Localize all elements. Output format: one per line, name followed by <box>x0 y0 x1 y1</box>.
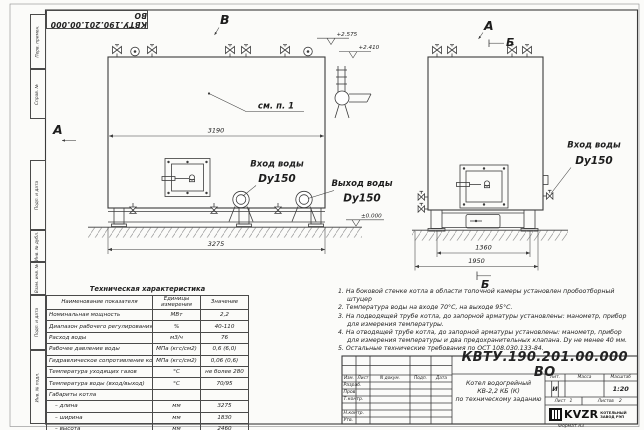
inlet-label-side: Вход воды Dy150 <box>551 141 621 194</box>
company-subtitle: КОТЕЛЬНЫЙ ЗАВОД РЭП <box>600 411 626 419</box>
svg-text:1360: 1360 <box>475 244 492 252</box>
drawing-sheet: 3190 3275 см. п. 1 Вход воды Dy150 Выход… <box>0 0 644 430</box>
svg-text:А: А <box>483 18 494 33</box>
lifting-lug-icon <box>131 47 140 56</box>
valve-icon <box>523 45 532 57</box>
valve-icon <box>148 45 157 57</box>
format-label: Формат А3 <box>558 424 584 429</box>
svg-text:Вход воды: Вход воды <box>567 141 621 151</box>
sheets-cell: Листов 2 <box>582 397 638 405</box>
elevation-mark-mid: +2.410 <box>339 45 380 58</box>
ground-hatch-side <box>412 230 568 240</box>
spec-row: Расход водым3/ч76 <box>47 332 249 343</box>
spec-row: – ширинамм1830 <box>47 412 249 423</box>
spec-table-title: Техническая характеристика <box>46 285 249 293</box>
lit-header: Лит. <box>545 374 565 381</box>
spec-table: Техническая характеристика Наименование … <box>46 285 249 430</box>
margin-field-inv-podl: Инв. № подл. <box>30 350 46 424</box>
sheet-cell: Лист 1 <box>545 397 582 405</box>
side-view: А Б <box>412 18 621 291</box>
inlet-label-front: Вход воды Dy150 <box>243 160 304 197</box>
row-prov: Пров. <box>344 390 371 395</box>
ash-box <box>466 215 500 229</box>
spec-header-cell: Единицы измерения <box>153 296 201 310</box>
boiler-body-side <box>428 57 543 210</box>
elevation-mark-top: +2.575 <box>317 32 358 45</box>
section-mark-b-top: Б <box>489 36 514 49</box>
row-utv: Утв. <box>344 418 371 423</box>
support-frame-front <box>108 208 325 227</box>
roof-fittings-front <box>113 45 313 57</box>
rotated-doc-stamp: КВТУ.190.201.00.000 ВО <box>46 10 148 29</box>
svg-text:±0.000: ±0.000 <box>361 213 382 219</box>
margin-field-podp-data-2: Подп. и дата <box>30 295 46 350</box>
furnace-door-front <box>162 159 210 197</box>
valve-icon <box>113 45 122 57</box>
note-line: 3. На подводящей трубе котла, до запорно… <box>338 313 635 329</box>
dim-text: 3275 <box>208 240 225 248</box>
col-izm: Изм. <box>342 376 356 382</box>
company-logo: KVZR КОТЕЛЬНЫЙ ЗАВОД РЭП <box>545 405 642 424</box>
lifting-lug-icon <box>304 47 313 56</box>
row-tkontr: Т.контр. <box>344 397 371 402</box>
svg-text:Dy150: Dy150 <box>343 193 380 205</box>
dim-text: 3190 <box>208 127 225 135</box>
mass-header: Масса <box>565 374 604 381</box>
svg-text:Dy150: Dy150 <box>575 155 612 167</box>
dimension-3190: 3190 <box>109 127 324 137</box>
door-handle <box>457 183 470 187</box>
spec-row: Диапазон рабочего регулирования%40-110 <box>47 321 249 332</box>
spec-row: Температура воды (вход/выход)°С70/95 <box>47 378 249 389</box>
spec-header-row: Наименование показателя Единицы измерени… <box>47 296 249 310</box>
margin-field-podp-data-1: Подп. и дата <box>30 160 46 230</box>
outlet-pipe-assembly <box>335 66 371 118</box>
ground-hatch <box>88 227 362 237</box>
row-nkontr: Н.контр. <box>344 411 371 416</box>
view-label-a-side: А <box>479 18 494 39</box>
svg-text:Dy150: Dy150 <box>258 173 295 185</box>
valve-icon <box>418 191 428 200</box>
valve-icon <box>448 45 457 57</box>
technical-notes: 1. На боковой стенке котла в области топ… <box>338 288 635 354</box>
view-label-v: В <box>215 12 230 35</box>
spec-header-cell: Наименование показателя <box>47 296 153 310</box>
company-name: KVZR <box>564 408 598 421</box>
margin-field-sprav-no: Справ. № <box>30 69 46 119</box>
col-podp: Подп. <box>410 376 431 382</box>
furnace-door-side <box>457 165 509 208</box>
spec-row: Рабочее давление водыМПа (кгс/см2)0,6 (6… <box>47 344 249 355</box>
col-data: Дата <box>431 376 452 382</box>
margin-field-perv-primen: Перв. примен. <box>30 14 46 69</box>
row-razrab: Разраб. <box>344 383 371 388</box>
col-doc: N докум. <box>370 376 410 382</box>
view-label-a-front: А <box>52 122 76 141</box>
door-handle <box>162 177 175 181</box>
wall-flange <box>543 176 548 185</box>
spec-row: Гидравлическое сопротивление котлаМПа (к… <box>47 355 249 366</box>
spec-header-cell: Значение <box>201 296 249 310</box>
kvzr-logo-icon <box>549 408 562 421</box>
svg-text:А: А <box>52 122 63 137</box>
outlet-label-front: Выход воды Dy150 <box>308 179 393 205</box>
valve-icon <box>543 190 553 199</box>
svg-text:Вход воды: Вход воды <box>250 160 304 170</box>
valve-icon <box>226 45 235 57</box>
scale-header: Масштаб <box>604 374 638 381</box>
spec-row: Номинальная мощностьМВт2,2 <box>47 310 249 321</box>
scale-value: 1:20 <box>604 381 638 397</box>
svg-text:В: В <box>220 12 230 27</box>
margin-field-inv-dubl: Инв. № дубл. <box>30 230 46 262</box>
col-list: Лист <box>356 376 370 382</box>
note-line: 2. Температура воды на входе 70°С, на вы… <box>338 304 635 312</box>
margin-field-vzam-inv: Взам. инв. № <box>30 262 46 295</box>
product-name: Котел водогрейный КВ-2,2 КБ (К) по техни… <box>452 374 545 410</box>
note-line: 4. На отводящей трубе котла, до запорной… <box>338 329 635 345</box>
roof-fittings-side <box>433 45 532 57</box>
note-line: 1. На боковой стенке котла в области топ… <box>338 288 635 304</box>
lit-value: И <box>545 381 565 397</box>
svg-text:Б: Б <box>506 36 514 49</box>
svg-text:+2.575: +2.575 <box>337 32 358 38</box>
svg-text:+2.410: +2.410 <box>359 45 380 51</box>
spec-row: – высотамм2460 <box>47 423 249 430</box>
spec-row: Габариты котла <box>47 389 249 400</box>
doc-number: КВТУ.190.201.00.000 ВО <box>452 356 638 374</box>
spec-row: – длинамм3275 <box>47 401 249 412</box>
valve-icon <box>418 203 428 212</box>
callout-text: см. п. 1 <box>258 102 294 112</box>
valve-icon <box>242 45 251 57</box>
svg-text:Выход воды: Выход воды <box>331 179 392 189</box>
elevation-mark-ground: ±0.000 <box>346 213 384 226</box>
callout-see-note-1: см. п. 1 <box>208 92 304 111</box>
valve-icon <box>433 45 442 57</box>
front-view: 3190 3275 см. п. 1 Вход воды Dy150 Выход… <box>52 12 393 254</box>
spec-row: Температура уходящих газов°Сне более 280 <box>47 366 249 377</box>
water-outlet-flange <box>292 191 316 221</box>
svg-text:1950: 1950 <box>468 257 485 265</box>
valve-icon <box>281 45 290 57</box>
